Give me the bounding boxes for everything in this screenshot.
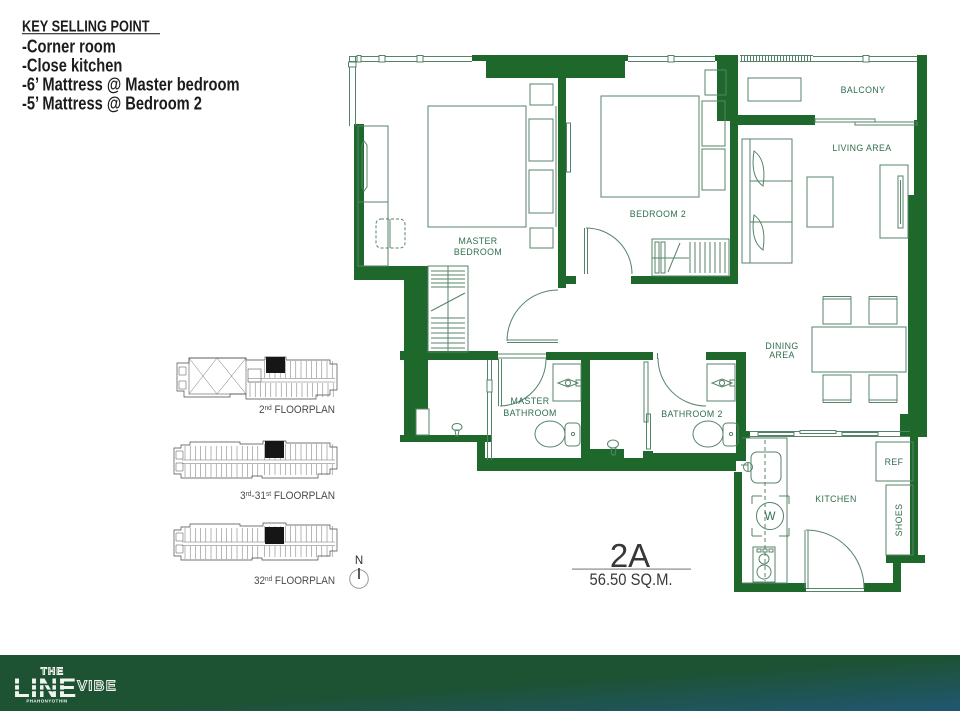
svg-text:-Corner room: -Corner room [22, 36, 116, 57]
svg-text:REF: REF [885, 457, 904, 467]
svg-text:BATHROOM: BATHROOM [503, 408, 556, 418]
svg-text:MASTER: MASTER [458, 236, 497, 246]
svg-text:-6’ Mattress @ Master bedroom: -6’ Mattress @ Master bedroom [22, 74, 240, 95]
svg-text:N: N [355, 555, 363, 567]
svg-text:3rd-31st FLOORPLAN: 3rd-31st FLOORPLAN [240, 489, 335, 502]
svg-text:AREA: AREA [769, 350, 795, 360]
svg-text:SHOES: SHOES [894, 504, 904, 537]
svg-text:BEDROOM 2: BEDROOM 2 [630, 209, 686, 219]
svg-text:MASTER: MASTER [510, 396, 549, 406]
svg-text:-Close kitchen: -Close kitchen [22, 55, 122, 76]
svg-text:BALCONY: BALCONY [841, 85, 886, 95]
svg-text:KITCHEN: KITCHEN [815, 494, 856, 504]
svg-text:56.50 SQ.M.: 56.50 SQ.M. [590, 571, 673, 589]
svg-text:PHAHONYOTHIN: PHAHONYOTHIN [26, 699, 67, 704]
svg-text:2A: 2A [610, 537, 650, 574]
svg-text:W: W [765, 511, 776, 523]
svg-text:-5’ Mattress @ Bedroom 2: -5’ Mattress @ Bedroom 2 [22, 93, 202, 114]
svg-text:VIBE: VIBE [77, 678, 117, 695]
svg-text:LIVING AREA: LIVING AREA [832, 143, 891, 153]
svg-text:BEDROOM: BEDROOM [454, 247, 502, 257]
svg-text:BATHROOM 2: BATHROOM 2 [661, 409, 723, 419]
